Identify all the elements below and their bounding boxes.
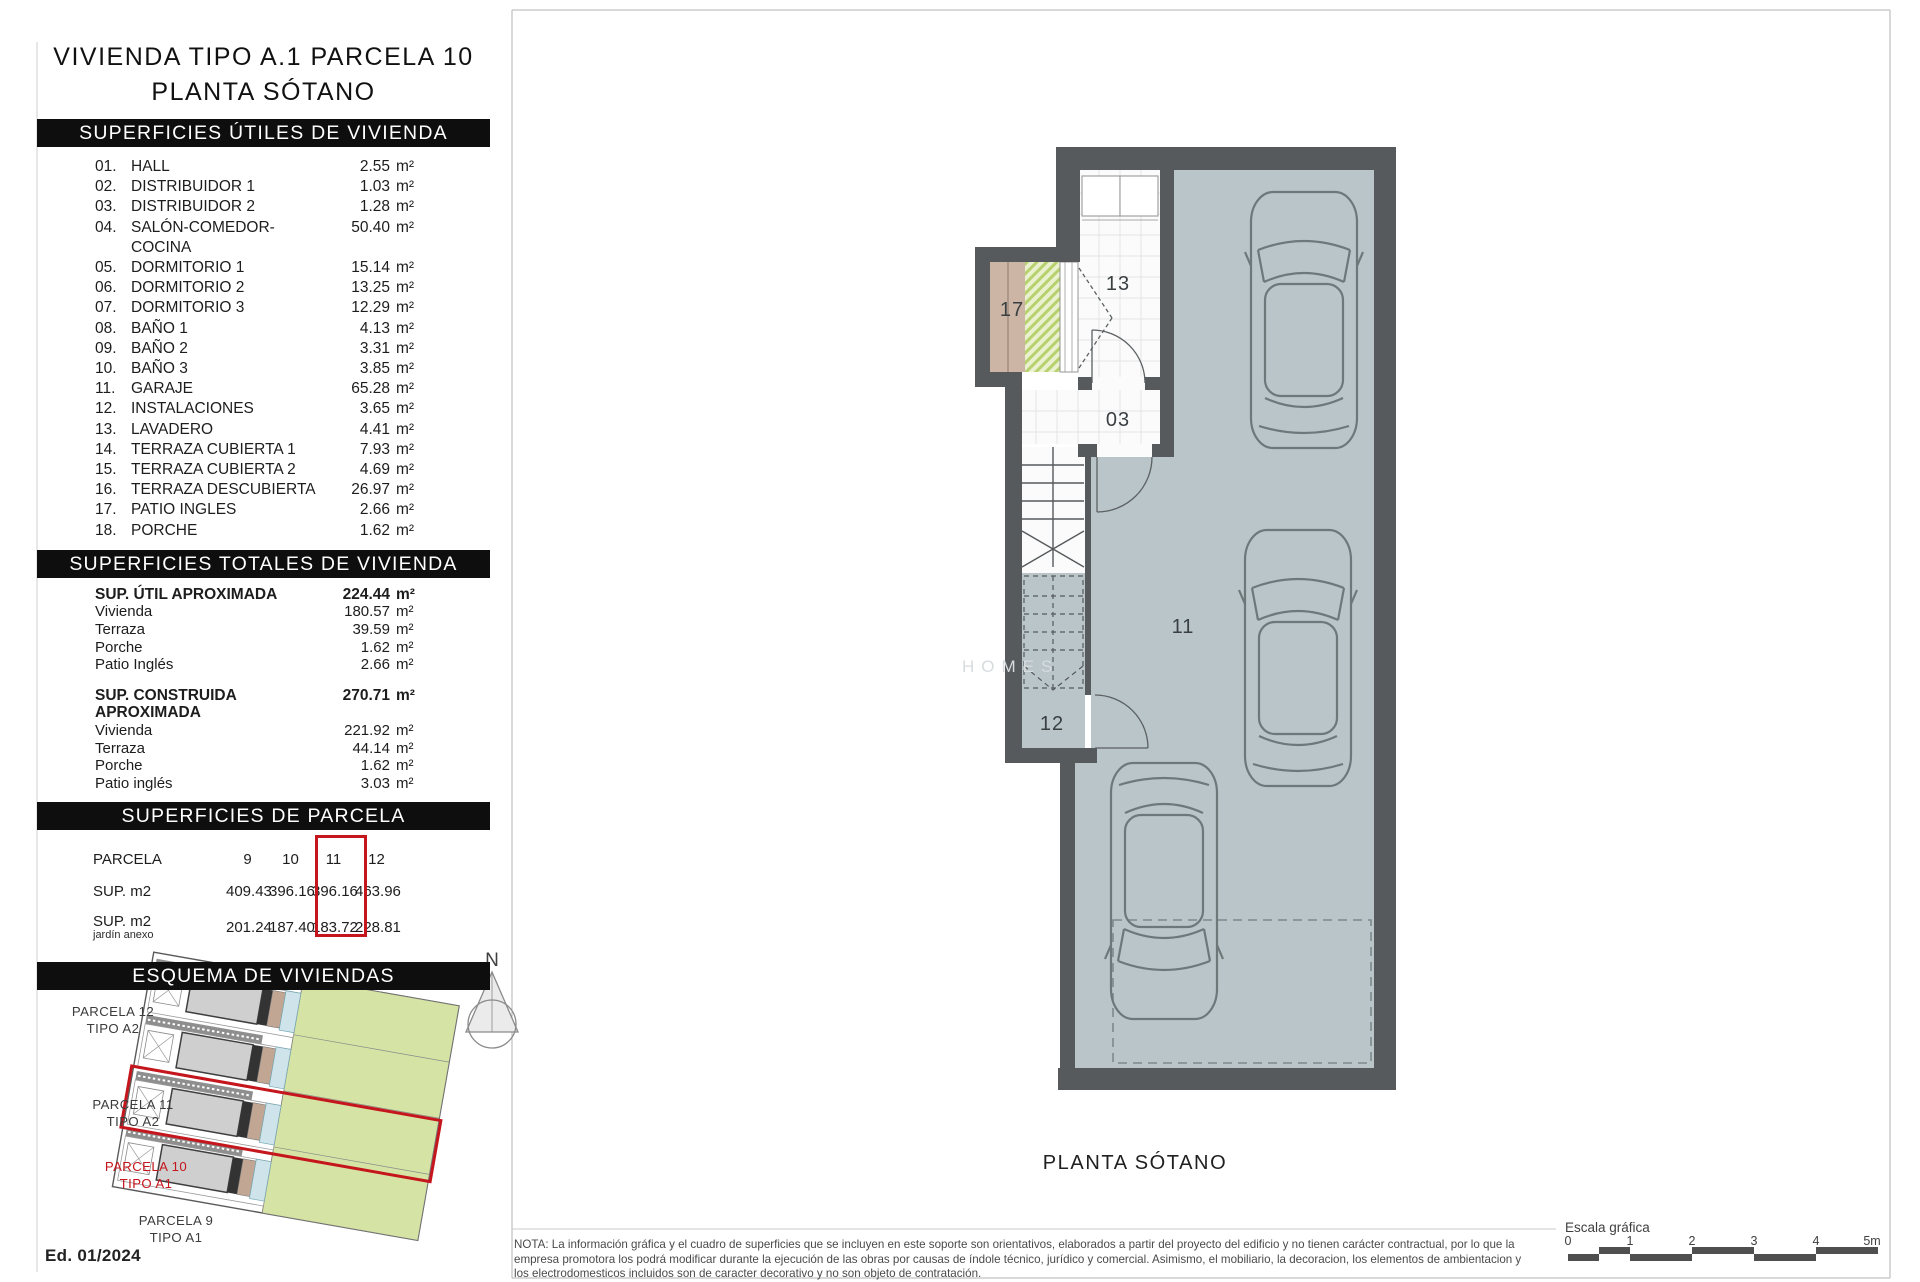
row-number: 08. [95, 319, 131, 339]
parcela-cell: 409.43 [226, 883, 269, 900]
scale-tick: 0 [1565, 1234, 1572, 1248]
row-label: BAÑO 1 [131, 319, 330, 339]
total-sub-row: Terraza39.59m² [95, 621, 420, 639]
row-unit: m² [390, 480, 420, 500]
edition-label: Ed. 01/2024 [45, 1246, 141, 1266]
total-value: 270.71 [314, 687, 390, 722]
row-value: 3.65 [330, 399, 390, 419]
row-label: PORCHE [131, 521, 330, 541]
row-unit: m² [390, 319, 420, 339]
room-label-13: 13 [1106, 273, 1130, 295]
area-row: 11.GARAJE65.28m² [95, 379, 420, 399]
row-number: 09. [95, 339, 131, 359]
scale-tick: 5m [1863, 1234, 1880, 1248]
row-label: DORMITORIO 3 [131, 298, 330, 318]
floor-plan: HOMES 17 13 03 11 12 [962, 147, 1396, 1090]
row-number: 02. [95, 177, 131, 197]
row-unit: m² [390, 218, 420, 258]
row-label: SALÓN-COMEDOR-COCINA [131, 218, 330, 258]
parcela-row-label: PARCELA [93, 851, 226, 868]
row-number: 04. [95, 218, 131, 258]
parcela-cell: 396.16 [269, 883, 312, 900]
row-value: 65.28 [330, 379, 390, 399]
area-row: 07.DORMITORIO 312.29m² [95, 298, 420, 318]
room-label-12: 12 [1040, 713, 1064, 735]
total-sub-value: 1.62 [314, 639, 390, 657]
totals-rows-0: Vivienda180.57m²Terraza39.59m²Porche1.62… [95, 603, 420, 673]
row-unit: m² [390, 379, 420, 399]
laundry-appliances [1082, 176, 1158, 220]
row-value: 4.13 [330, 319, 390, 339]
area-row: 18.PORCHE1.62m² [95, 521, 420, 541]
row-number: 05. [95, 258, 131, 278]
total-sub-row: Porche1.62m² [95, 639, 420, 657]
row-number: 01. [95, 157, 131, 177]
row-unit: m² [390, 298, 420, 318]
row-label: GARAJE [131, 379, 330, 399]
row-unit: m² [390, 197, 420, 217]
disclaimer-note: NOTA: La información gráfica y el cuadro… [514, 1238, 1522, 1282]
area-row: 04.SALÓN-COMEDOR-COCINA50.40m² [95, 218, 420, 258]
total-sub-label: Terraza [95, 740, 314, 758]
parcela-cell: 201.24 [226, 919, 269, 936]
row-label: BAÑO 3 [131, 359, 330, 379]
row-number: 10. [95, 359, 131, 379]
row-value: 3.85 [330, 359, 390, 379]
row-label: DISTRIBUIDOR 2 [131, 197, 330, 217]
row-value: 1.28 [330, 197, 390, 217]
room-label-17: 17 [1000, 299, 1024, 321]
parcela-row-jardin: SUP. m2 jardín anexo 201.24187.40183.722… [93, 906, 490, 948]
row-label: BAÑO 2 [131, 339, 330, 359]
total-sub-label: Vivienda [95, 603, 314, 621]
row-number: 13. [95, 420, 131, 440]
parcela-cell: 9 [226, 851, 269, 868]
total-sub-value: 2.66 [314, 656, 390, 674]
row-unit: m² [390, 359, 420, 379]
parcel-label: PARCELA 10 TIPO A1 [105, 1158, 187, 1192]
row-label: DORMITORIO 2 [131, 278, 330, 298]
row-number: 17. [95, 500, 131, 520]
row-unit: m² [390, 399, 420, 419]
total-sub-value: 3.03 [314, 775, 390, 793]
row-label: TERRAZA CUBIERTA 2 [131, 460, 330, 480]
row-value: 13.25 [330, 278, 390, 298]
area-row: 01.HALL2.55m² [95, 157, 420, 177]
total-label: SUP. ÚTIL APROXIMADA [95, 586, 314, 604]
total-sub-unit: m² [390, 757, 420, 775]
total-sub-unit: m² [390, 775, 420, 793]
area-row: 12.INSTALACIONES3.65m² [95, 399, 420, 419]
area-row: 02.DISTRIBUIDOR 11.03m² [95, 177, 420, 197]
total-sub-value: 39.59 [314, 621, 390, 639]
area-row: 13.LAVADERO4.41m² [95, 420, 420, 440]
scale-tick: 3 [1751, 1234, 1758, 1248]
row-label: INSTALACIONES [131, 399, 330, 419]
room-label-11: 11 [1172, 616, 1195, 638]
row-label: DORMITORIO 1 [131, 258, 330, 278]
row-label: HALL [131, 157, 330, 177]
total-sub-unit: m² [390, 656, 420, 674]
row-value: 1.03 [330, 177, 390, 197]
scale-tick: 4 [1813, 1234, 1820, 1248]
row-value: 12.29 [330, 298, 390, 318]
row-label: DISTRIBUIDOR 1 [131, 177, 330, 197]
parcela-table: PARCELA 9101112 SUP. m2 409.43396.16396.… [37, 830, 490, 962]
total-label: SUP. CONSTRUIDA APROXIMADA [95, 687, 314, 722]
row-value: 4.69 [330, 460, 390, 480]
row-number: 11. [95, 379, 131, 399]
section-header-esquema: ESQUEMA DE VIVIENDAS [37, 962, 490, 990]
area-row: 10.BAÑO 33.85m² [95, 359, 420, 379]
row-label: TERRAZA DESCUBIERTA [131, 480, 330, 500]
row-number: 15. [95, 460, 131, 480]
total-sub-row: Vivienda180.57m² [95, 603, 420, 621]
row-unit: m² [390, 157, 420, 177]
row-number: 16. [95, 480, 131, 500]
section-header-superficies-utiles: SUPERFICIES ÚTILES DE VIVIENDA [37, 119, 490, 147]
total-sub-row: Patio Inglés2.66m² [95, 656, 420, 674]
parcela-row-label-sub: jardín anexo [93, 930, 226, 941]
total-sub-unit: m² [390, 621, 420, 639]
area-row: 16.TERRAZA DESCUBIERTA26.97m² [95, 480, 420, 500]
plan-title: PLANTA SÓTANO [1030, 1152, 1240, 1175]
total-sub-row: Terraza44.14m² [95, 740, 420, 758]
parcela-row-label: SUP. m2 [93, 883, 226, 900]
total-sub-value: 44.14 [314, 740, 390, 758]
parcel-label: PARCELA 9 TIPO A1 [139, 1212, 213, 1246]
area-row: 15.TERRAZA CUBIERTA 24.69m² [95, 460, 420, 480]
row-label: TERRAZA CUBIERTA 1 [131, 440, 330, 460]
row-number: 06. [95, 278, 131, 298]
row-value: 15.14 [330, 258, 390, 278]
total-sub-row: Porche1.62m² [95, 757, 420, 775]
row-unit: m² [390, 177, 420, 197]
utiles-list: 01.HALL2.55m²02.DISTRIBUIDOR 11.03m²03.D… [37, 147, 490, 550]
row-unit: m² [390, 460, 420, 480]
total-sub-value: 221.92 [314, 722, 390, 740]
total-sub-label: Porche [95, 639, 314, 657]
row-value: 2.55 [330, 157, 390, 177]
total-construida-header: SUP. CONSTRUIDA APROXIMADA 270.71 m² [95, 687, 420, 722]
total-sub-unit: m² [390, 603, 420, 621]
section-header-superficies-parcela: SUPERFICIES DE PARCELA [37, 802, 490, 830]
total-sub-unit: m² [390, 639, 420, 657]
row-unit: m² [390, 278, 420, 298]
title-line-1: VIVIENDA TIPO A.1 PARCELA 10 [37, 40, 490, 75]
area-row: 06.DORMITORIO 213.25m² [95, 278, 420, 298]
area-row: 14.TERRAZA CUBIERTA 17.93m² [95, 440, 420, 460]
row-number: 18. [95, 521, 131, 541]
total-sub-row: Vivienda221.92m² [95, 722, 420, 740]
row-value: 7.93 [330, 440, 390, 460]
row-unit: m² [390, 440, 420, 460]
row-value: 3.31 [330, 339, 390, 359]
scale-tick: 2 [1689, 1234, 1696, 1248]
total-sub-label: Terraza [95, 621, 314, 639]
parcela-row-sup: SUP. m2 409.43396.16396.16463.96 [93, 876, 490, 906]
section-header-superficies-totales: SUPERFICIES TOTALES DE VIVIENDA [37, 550, 490, 578]
watermark: HOMES [962, 657, 1059, 676]
area-row: 08.BAÑO 14.13m² [95, 319, 420, 339]
title-line-2: PLANTA SÓTANO [37, 75, 490, 110]
total-sub-value: 180.57 [314, 603, 390, 621]
row-number: 12. [95, 399, 131, 419]
scale-tick: 1 [1627, 1234, 1634, 1248]
row-number: 07. [95, 298, 131, 318]
area-row: 17.PATIO INGLES2.66m² [95, 500, 420, 520]
scale-title: Escala gráfica [1565, 1220, 1650, 1235]
area-row: 03.DISTRIBUIDOR 21.28m² [95, 197, 420, 217]
row-value: 2.66 [330, 500, 390, 520]
total-sub-label: Patio inglés [95, 775, 314, 793]
total-unit: m² [390, 586, 420, 604]
room-label-03: 03 [1106, 409, 1130, 431]
total-sub-unit: m² [390, 722, 420, 740]
totals-block: SUP. ÚTIL APROXIMADA 224.44 m² Vivienda1… [37, 578, 490, 803]
parcela-cell: 187.40 [269, 919, 312, 936]
row-unit: m² [390, 420, 420, 440]
parcel-label: PARCELA 11 TIPO A2 [92, 1096, 173, 1130]
total-sub-row: Patio inglés3.03m² [95, 775, 420, 793]
row-value: 50.40 [330, 218, 390, 258]
row-value: 4.41 [330, 420, 390, 440]
row-value: 1.62 [330, 521, 390, 541]
parcela-row-headers: PARCELA 9101112 [93, 842, 490, 876]
total-sub-label: Vivienda [95, 722, 314, 740]
parcela-row-label: SUP. m2 jardín anexo [93, 913, 226, 941]
total-sub-label: Porche [95, 757, 314, 775]
parcela-row-label-main: SUP. m2 [93, 913, 151, 930]
area-row: 09.BAÑO 23.31m² [95, 339, 420, 359]
total-util-header: SUP. ÚTIL APROXIMADA 224.44 m² [95, 586, 420, 604]
row-unit: m² [390, 339, 420, 359]
row-label: PATIO INGLES [131, 500, 330, 520]
row-unit: m² [390, 500, 420, 520]
row-unit: m² [390, 258, 420, 278]
total-sub-value: 1.62 [314, 757, 390, 775]
row-unit: m² [390, 521, 420, 541]
row-number: 03. [95, 197, 131, 217]
total-value: 224.44 [314, 586, 390, 604]
total-sub-unit: m² [390, 740, 420, 758]
row-label: LAVADERO [131, 420, 330, 440]
document-title: VIVIENDA TIPO A.1 PARCELA 10 PLANTA SÓTA… [37, 40, 490, 110]
total-sub-label: Patio Inglés [95, 656, 314, 674]
area-row: 05.DORMITORIO 115.14m² [95, 258, 420, 278]
scale-bar: Escala gráfica 0 1 2 3 4 5m [1565, 1220, 1881, 1261]
total-unit: m² [390, 687, 420, 722]
parcela-10-column-highlight [315, 835, 367, 937]
row-number: 14. [95, 440, 131, 460]
info-panel: VIVIENDA TIPO A.1 PARCELA 10 PLANTA SÓTA… [37, 40, 490, 990]
parcela-cell: 10 [269, 851, 312, 868]
parcel-label: PARCELA 12 TIPO A2 [72, 1003, 154, 1037]
totals-rows-1: Vivienda221.92m²Terraza44.14m²Porche1.62… [95, 722, 420, 792]
row-value: 26.97 [330, 480, 390, 500]
